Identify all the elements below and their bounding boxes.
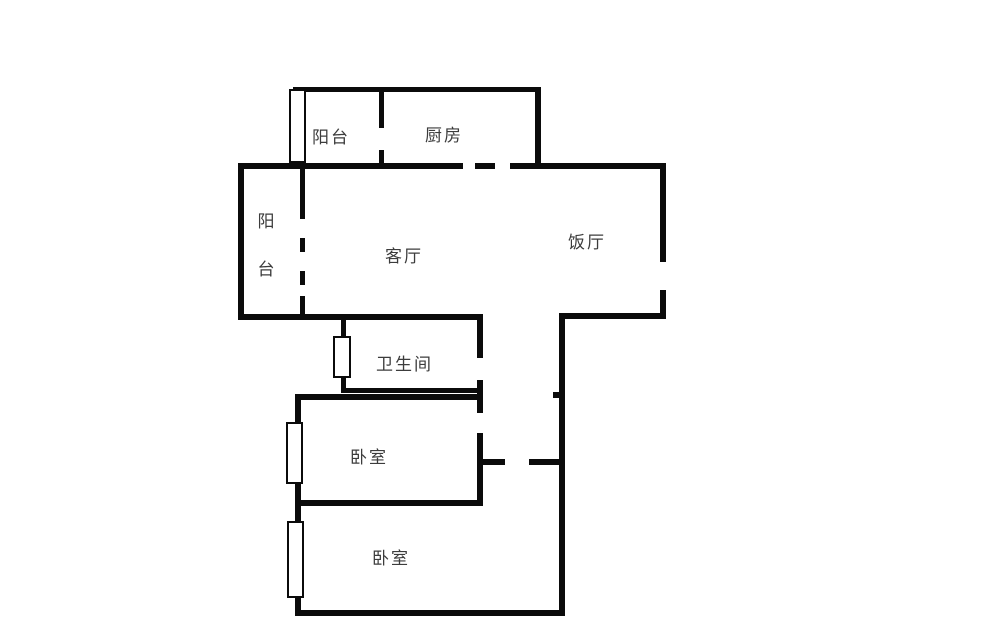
wall-outer-left	[238, 163, 244, 320]
label-bedroom2: 卧室	[372, 544, 410, 569]
wall-balcony-divider-bottom	[300, 296, 305, 314]
bedroom2-window-icon	[287, 521, 304, 598]
floor-plan: 阳台 厨房 阳台 客厅 饭厅 卫生间 卧室 卧室	[0, 0, 1000, 637]
wall-kitchen-right	[535, 87, 541, 169]
balcony-top-window-icon	[289, 89, 306, 163]
wall-dining-bottom	[562, 313, 666, 319]
hall-dash-right	[529, 459, 562, 465]
bedroom1-window-icon	[286, 422, 303, 484]
label-balcony-left: 阳台	[256, 198, 276, 294]
label-balcony-top: 阳台	[312, 123, 350, 148]
bathroom-window-icon	[333, 336, 351, 378]
wall-bathroom-right-lower	[477, 433, 483, 505]
label-bathroom: 卫生间	[376, 350, 433, 375]
wall-bottom	[295, 610, 565, 616]
label-kitchen: 厨房	[425, 121, 463, 146]
label-living-room: 客厅	[385, 242, 423, 267]
entry-door-dash	[475, 163, 495, 169]
wall-bathroom-bottom	[341, 388, 481, 393]
wall-balcony-divider-top	[300, 169, 305, 205]
wall-mid-upper	[238, 314, 483, 320]
wall-top-right-segment	[510, 163, 666, 169]
label-bedroom1: 卧室	[350, 443, 388, 468]
wall-dining-right-upper	[660, 163, 666, 262]
wall-kitchen-balcony-divider-upper	[379, 89, 384, 128]
wall-nub	[553, 392, 560, 398]
wall-top-left-segment	[238, 163, 463, 169]
wall-bedroom1-top	[295, 394, 483, 400]
hall-dash-left-stub	[477, 459, 505, 465]
wall-bedroom2-top	[295, 500, 483, 506]
wall-bathroom-right-upper	[477, 314, 483, 358]
wall-kitchen-top	[293, 87, 540, 92]
balcony-door-dashes	[300, 205, 305, 296]
label-dining-room: 饭厅	[568, 228, 606, 253]
